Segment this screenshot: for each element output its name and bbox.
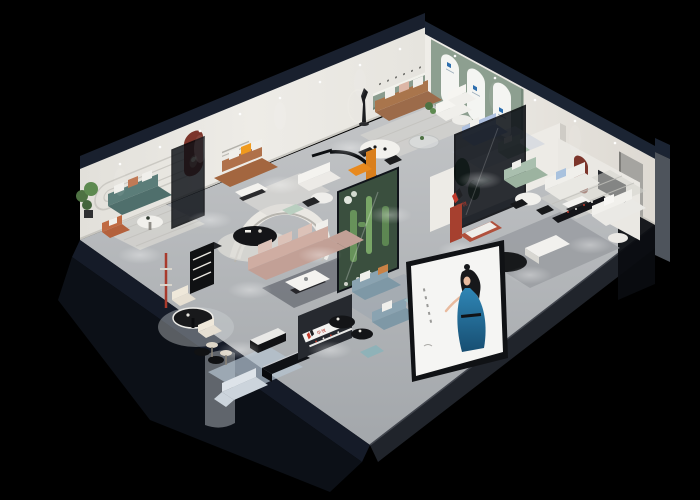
pole-shelf — [160, 284, 172, 286]
white-pouf — [608, 233, 628, 243]
decor-book — [245, 230, 251, 233]
storefront-poster — [406, 240, 508, 382]
model-face — [464, 277, 471, 286]
plant-pot — [84, 210, 93, 218]
pedestal — [192, 318, 195, 328]
table-decor — [304, 277, 308, 281]
right-corner-outer-face — [655, 152, 670, 262]
red-display-panel — [450, 203, 462, 243]
glass-coffee-table — [409, 135, 439, 149]
showroom-render: 华悦 — [0, 0, 700, 500]
bar-table — [208, 356, 224, 364]
table-leg — [149, 222, 152, 230]
decor-vase — [258, 229, 262, 233]
gallery-table — [452, 115, 472, 125]
isometric-scene: 华悦 — [0, 0, 700, 500]
pole-shelf — [160, 268, 172, 270]
table-plant — [420, 136, 424, 140]
bar-table — [194, 348, 210, 356]
decor — [186, 313, 189, 316]
table-decor — [146, 216, 150, 220]
tabletop — [409, 135, 439, 149]
statue-base — [359, 122, 369, 126]
